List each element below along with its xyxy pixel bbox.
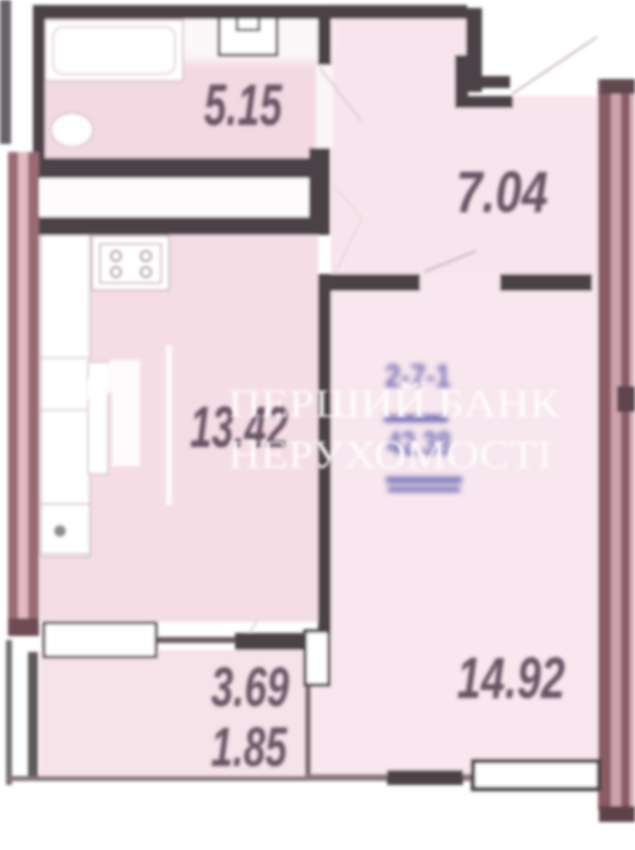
svg-text:14.92: 14.92 xyxy=(457,646,565,711)
svg-text:3.69: 3.69 xyxy=(211,655,289,718)
svg-text:5.15: 5.15 xyxy=(204,73,283,138)
svg-text:7.04: 7.04 xyxy=(456,160,548,225)
svg-text:1.85: 1.85 xyxy=(211,715,288,778)
svg-text:ПЕРШИЙ БАНК: ПЕРШИЙ БАНК xyxy=(228,381,560,426)
svg-text:НЕРУХОМОСТІ: НЕРУХОМОСТІ xyxy=(228,432,552,477)
